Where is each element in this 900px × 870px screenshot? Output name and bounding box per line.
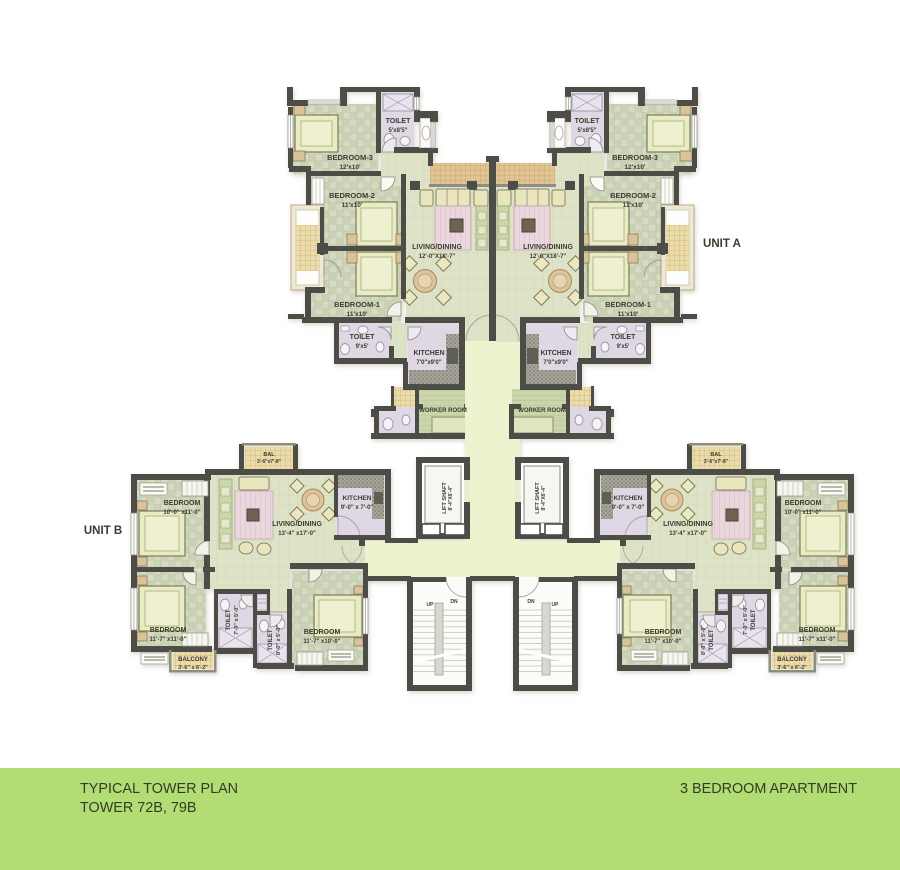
svg-text:BEDROOM: BEDROOM xyxy=(304,629,341,636)
svg-text:13'-4" x17'-0": 13'-4" x17'-0" xyxy=(278,531,316,537)
svg-text:WORKER ROOM: WORKER ROOM xyxy=(419,408,467,414)
svg-text:BALCONY: BALCONY xyxy=(777,657,807,663)
svg-text:LIVING/DINING: LIVING/DINING xyxy=(523,244,573,251)
svg-text:5'x8'5": 5'x8'5" xyxy=(577,128,596,134)
svg-text:7'0"x9'0": 7'0"x9'0" xyxy=(416,360,441,366)
svg-text:LIVING/DINING: LIVING/DINING xyxy=(272,521,322,528)
svg-text:9'x5': 9'x5' xyxy=(356,344,369,350)
svg-text:11'-7" x11'-0": 11'-7" x11'-0" xyxy=(799,637,836,643)
svg-text:BEDROOM: BEDROOM xyxy=(150,627,187,634)
svg-text:11'x10': 11'x10' xyxy=(623,202,644,209)
svg-text:BEDROOM-1: BEDROOM-1 xyxy=(605,300,651,309)
svg-text:BEDROOM: BEDROOM xyxy=(164,500,201,507)
svg-text:11'-7" x11'-0": 11'-7" x11'-0" xyxy=(150,637,187,643)
svg-text:7'0"x9'0": 7'0"x9'0" xyxy=(543,360,568,366)
svg-text:BALCONY: BALCONY xyxy=(178,657,208,663)
svg-text:TOILET: TOILET xyxy=(386,118,411,125)
svg-text:KITCHEN: KITCHEN xyxy=(614,495,643,502)
svg-text:BEDROOM: BEDROOM xyxy=(645,629,682,636)
svg-text:11'x10': 11'x10' xyxy=(618,311,639,318)
svg-text:KITCHEN: KITCHEN xyxy=(413,350,444,357)
svg-text:12'x10': 12'x10' xyxy=(624,164,646,171)
svg-text:LIVING/DINING: LIVING/DINING xyxy=(663,521,713,528)
svg-text:7'-0" x 5'-0": 7'-0" x 5'-0" xyxy=(234,605,240,635)
svg-text:5'x8'5": 5'x8'5" xyxy=(388,128,407,134)
svg-text:TOILET: TOILET xyxy=(226,609,232,631)
svg-text:TOILET: TOILET xyxy=(575,118,600,125)
svg-text:TOILET: TOILET xyxy=(268,629,274,651)
svg-text:TOILET: TOILET xyxy=(709,629,715,651)
svg-text:11'x10': 11'x10' xyxy=(347,311,368,318)
svg-text:3'-6"x7'-8": 3'-6"x7'-8" xyxy=(257,459,282,465)
svg-text:10'-0" x11'-0": 10'-0" x11'-0" xyxy=(784,510,821,516)
svg-text:3'-6" x 6'-2": 3'-6" x 6'-2" xyxy=(178,665,208,671)
svg-text:8'-4"X6'-4": 8'-4"X6'-4" xyxy=(541,485,547,511)
svg-text:BEDROOM-1: BEDROOM-1 xyxy=(334,300,380,309)
svg-text:LIVING/DINING: LIVING/DINING xyxy=(412,244,462,251)
svg-text:BEDROOM: BEDROOM xyxy=(799,627,836,634)
svg-text:3'-6" x 6'-2": 3'-6" x 6'-2" xyxy=(777,665,807,671)
svg-text:11'-7" x10'-0": 11'-7" x10'-0" xyxy=(644,639,681,645)
svg-text:8'-0" x 5'-0": 8'-0" x 5'-0" xyxy=(276,625,282,655)
svg-text:3 BEDROOM APARTMENT: 3 BEDROOM APARTMENT xyxy=(680,781,857,797)
svg-text:BAL: BAL xyxy=(263,452,275,458)
svg-text:TYPICAL TOWER PLAN: TYPICAL TOWER PLAN xyxy=(80,781,238,797)
svg-text:TOILET: TOILET xyxy=(751,609,757,631)
svg-text:UP: UP xyxy=(552,602,560,608)
svg-text:BEDROOM-3: BEDROOM-3 xyxy=(327,153,373,162)
svg-text:KITCHEN: KITCHEN xyxy=(540,350,571,357)
svg-text:UNIT B: UNIT B xyxy=(84,525,122,537)
svg-text:KITCHEN: KITCHEN xyxy=(343,495,372,502)
svg-text:12'-0"X18'-7": 12'-0"X18'-7" xyxy=(419,254,456,260)
svg-text:8'-0" x 5'-0": 8'-0" x 5'-0" xyxy=(701,625,707,655)
svg-text:9'-0" x 7'-0": 9'-0" x 7'-0" xyxy=(612,505,645,511)
svg-text:UP: UP xyxy=(427,602,435,608)
svg-text:9'x5': 9'x5' xyxy=(617,344,630,350)
svg-text:7'-0" x 5'-0": 7'-0" x 5'-0" xyxy=(743,605,749,635)
svg-text:11'x10': 11'x10' xyxy=(342,202,363,209)
svg-text:13'-4" x17'-0": 13'-4" x17'-0" xyxy=(669,531,707,537)
svg-text:11'-7" x10'-0": 11'-7" x10'-0" xyxy=(303,639,340,645)
svg-text:12'-0"X18'-7": 12'-0"X18'-7" xyxy=(530,254,567,260)
svg-text:BEDROOM-2: BEDROOM-2 xyxy=(610,191,656,200)
svg-text:3'-6"x7'-8": 3'-6"x7'-8" xyxy=(704,459,729,465)
svg-text:12'x10': 12'x10' xyxy=(339,164,361,171)
svg-text:BAL: BAL xyxy=(710,452,722,458)
svg-text:BEDROOM-2: BEDROOM-2 xyxy=(329,191,375,200)
svg-text:10'-0" x11'-0": 10'-0" x11'-0" xyxy=(163,510,200,516)
svg-text:DN: DN xyxy=(527,599,535,605)
svg-text:TOWER 72B, 79B: TOWER 72B, 79B xyxy=(80,800,197,816)
svg-text:9'-0" x 7'-0": 9'-0" x 7'-0" xyxy=(341,505,374,511)
svg-text:WORKER ROOM: WORKER ROOM xyxy=(518,408,566,414)
svg-text:DN: DN xyxy=(450,599,458,605)
svg-text:TOILET: TOILET xyxy=(350,334,375,341)
svg-text:UNIT A: UNIT A xyxy=(703,238,741,250)
svg-text:BEDROOM-3: BEDROOM-3 xyxy=(612,153,658,162)
svg-text:BEDROOM: BEDROOM xyxy=(785,500,822,507)
svg-text:8'-4"X6'-4": 8'-4"X6'-4" xyxy=(448,485,454,511)
svg-text:TOILET: TOILET xyxy=(611,334,636,341)
